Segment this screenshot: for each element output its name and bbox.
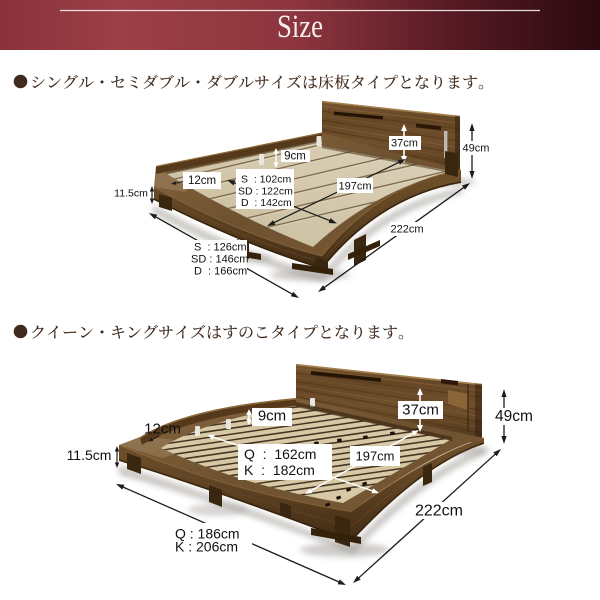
svg-text:197cm: 197cm [338, 181, 371, 193]
svg-text:37cm: 37cm [402, 402, 439, 419]
svg-text:SD : 146cm: SD : 146cm [191, 254, 248, 266]
svg-text:S : 102cm: S : 102cm [241, 174, 291, 186]
svg-text:222cm: 222cm [415, 503, 463, 520]
svg-text:K : 206cm: K : 206cm [175, 539, 238, 555]
svg-text:197cm: 197cm [355, 449, 394, 464]
svg-text:222cm: 222cm [390, 224, 423, 236]
svg-text:S : 126cm: S : 126cm [194, 242, 247, 254]
svg-text:12cm: 12cm [144, 421, 181, 438]
svg-text:Size: Size [277, 9, 323, 45]
svg-text:D : 142cm: D : 142cm [241, 197, 292, 209]
svg-text:SD : 122cm: SD : 122cm [238, 186, 293, 198]
svg-text:9cm: 9cm [258, 408, 286, 425]
svg-text:11.5cm: 11.5cm [114, 188, 148, 200]
svg-text:49cm: 49cm [463, 143, 490, 155]
svg-text:9cm: 9cm [284, 151, 306, 163]
svg-text:11.5cm: 11.5cm [67, 447, 112, 463]
svg-text:D : 166cm: D : 166cm [194, 266, 247, 278]
svg-text:K : 182cm: K : 182cm [244, 462, 315, 478]
svg-text:49cm: 49cm [495, 408, 533, 425]
svg-text:12cm: 12cm [188, 175, 216, 187]
svg-text:37cm: 37cm [391, 138, 418, 150]
svg-text:Q : 162cm: Q : 162cm [244, 446, 316, 462]
